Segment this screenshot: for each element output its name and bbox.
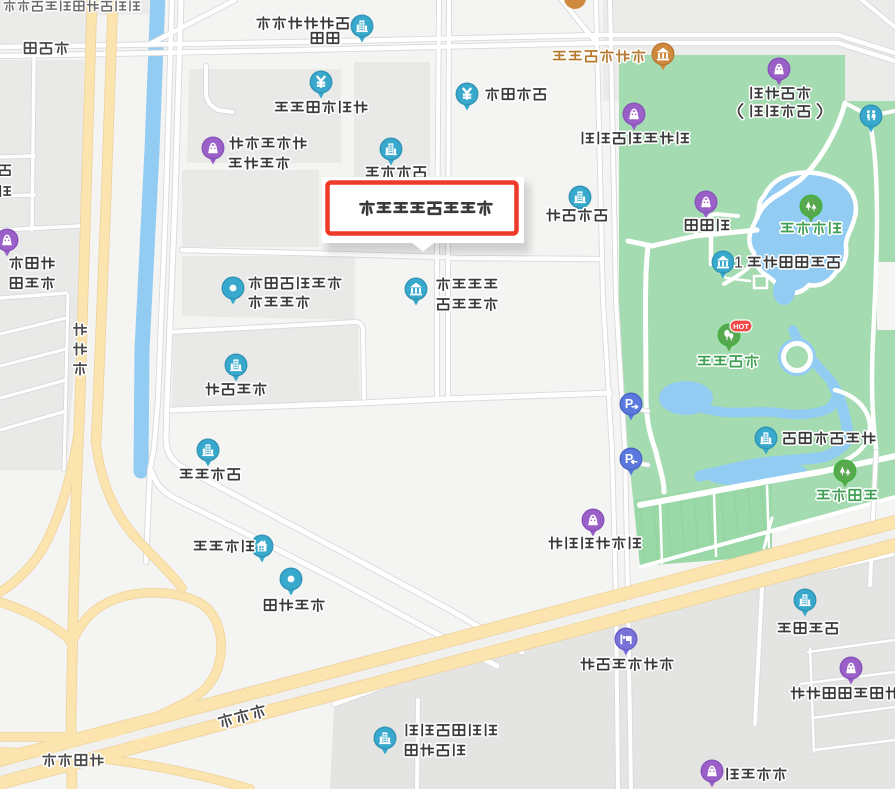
svg-text:P: P [625,452,633,466]
svg-text:P: P [625,397,633,411]
svg-text:HOT: HOT [733,322,749,331]
svg-text:1: 1 [734,255,743,272]
